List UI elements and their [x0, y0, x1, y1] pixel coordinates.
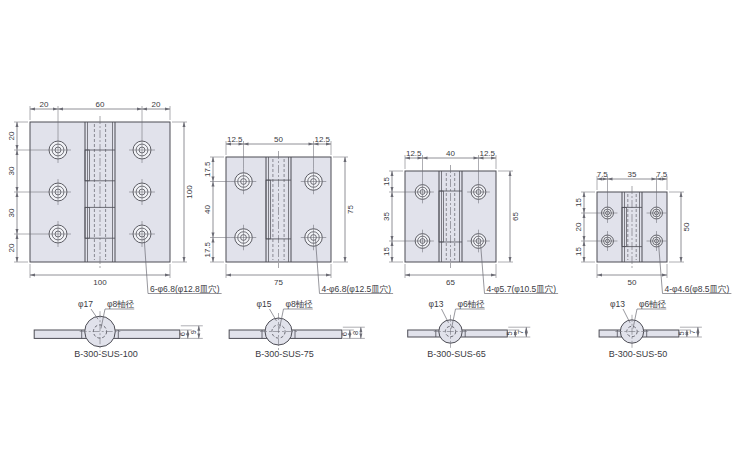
- side-view: φ13φ6軸径57B-300-SUS-50: [599, 299, 702, 359]
- dim-arrow: [212, 233, 215, 238]
- dim-arrow: [58, 108, 63, 111]
- dim-arrow: [391, 192, 394, 197]
- dim-arrow: [680, 257, 683, 262]
- overall-height-label: 7: [516, 330, 525, 334]
- dim-arrow: [509, 171, 512, 176]
- overall-height-label: 7: [688, 330, 697, 334]
- dim-label: 7.5: [656, 170, 668, 179]
- dim-arrow: [391, 241, 394, 246]
- plan-view: 12.55012.517.54017.57575: [203, 135, 355, 287]
- part-number: B-300-SUS-50: [609, 349, 668, 359]
- dim-arrow: [391, 257, 394, 262]
- plan-view: 7.5357.51520155050: [574, 170, 691, 287]
- dim-label: 35: [382, 212, 391, 221]
- dim-label: 30: [7, 208, 16, 217]
- dim-label: 65: [446, 278, 455, 287]
- dim-label: 100: [185, 185, 194, 199]
- dim-label: 30: [7, 166, 16, 175]
- thickness-label: 6: [340, 332, 349, 336]
- dim-label: 35: [628, 170, 637, 179]
- shaft-dia-label: φ8軸径: [286, 299, 314, 309]
- dim-arrow: [583, 208, 586, 213]
- dim-label: 20: [40, 100, 49, 109]
- dim-arrow: [680, 192, 683, 197]
- drawing-canvas: 206020203030201001006-φ6.8(φ12.8皿穴)φ17φ8…: [0, 0, 750, 450]
- shaft-dia-label: φ6軸径: [639, 299, 667, 309]
- dim-arrow: [344, 257, 347, 262]
- side-view: φ13φ6軸径57B-300-SUS-65: [408, 299, 531, 359]
- dim-arrow: [212, 182, 215, 187]
- hole-callout: 6-φ6.8(φ12.8皿穴): [150, 284, 220, 294]
- dim-arrow: [16, 229, 19, 234]
- dim-arrow: [662, 274, 667, 277]
- dim-arrow: [583, 192, 586, 197]
- dim-arrow: [16, 234, 19, 239]
- dim-arrow: [16, 192, 19, 197]
- dim-label: 20: [7, 131, 16, 140]
- dim-arrow: [597, 274, 602, 277]
- knuckle-dia-label: φ13: [610, 299, 625, 309]
- side-view: φ17φ8軸径69B-300-SUS-100: [34, 299, 203, 359]
- plan-view: 20602020303020100100: [7, 100, 194, 287]
- dim-arrow: [30, 108, 35, 111]
- dim-arrow: [16, 187, 19, 192]
- dim-label: 75: [346, 205, 355, 214]
- dim-arrow: [30, 274, 35, 277]
- thickness-label: 5: [677, 331, 686, 335]
- dim-label: 65: [511, 212, 520, 221]
- dim-arrow: [309, 143, 314, 146]
- side-view: φ15φ8軸径68B-300-SUS-75: [229, 299, 365, 359]
- dim-arrow: [344, 157, 347, 162]
- thickness-label: 6: [178, 332, 187, 336]
- dim-arrow: [391, 187, 394, 192]
- dim-arrow: [16, 122, 19, 127]
- dim-arrow: [583, 236, 586, 241]
- dim-label: 17.5: [203, 161, 212, 177]
- dim-label: 50: [628, 278, 637, 287]
- knuckle-dia-label: φ17: [78, 299, 93, 309]
- dim-arrow: [405, 274, 410, 277]
- dim-label: 12.5: [314, 135, 330, 144]
- technical-drawing-page: 206020203030201001006-φ6.8(φ12.8皿穴)φ17φ8…: [0, 0, 750, 450]
- dim-label: 15: [382, 247, 391, 256]
- dim-label: 100: [93, 278, 107, 287]
- dim-arrow: [474, 157, 479, 160]
- plan-view: 12.54012.51535156565: [382, 149, 520, 287]
- hole-callout: 4-φ4.6(φ8.5皿穴): [665, 284, 730, 294]
- dim-arrow: [226, 274, 231, 277]
- dim-arrow: [165, 274, 170, 277]
- dim-label: 12.5: [406, 149, 422, 158]
- dim-arrow: [137, 108, 142, 111]
- dim-arrow: [244, 143, 249, 146]
- part-number: B-300-SUS-75: [255, 349, 314, 359]
- hinge-B-300-SUS-50: 7.5357.515201550504-φ4.6(φ8.5皿穴)φ13φ6軸径5…: [574, 170, 731, 360]
- dim-label: 50: [274, 135, 283, 144]
- dim-arrow: [583, 213, 586, 218]
- part-number: B-300-SUS-65: [427, 349, 486, 359]
- dim-arrow: [608, 178, 613, 181]
- dim-arrow: [212, 238, 215, 243]
- dim-arrow: [491, 274, 496, 277]
- dim-arrow: [509, 257, 512, 262]
- part-number: B-300-SUS-100: [74, 349, 138, 359]
- dim-arrow: [16, 145, 19, 150]
- dim-arrow: [583, 257, 586, 262]
- shaft-dia-label: φ8軸径: [107, 299, 135, 309]
- hinge-B-300-SUS-65: 12.54012.515351565654-φ5.7(φ10.5皿穴)φ13φ6…: [382, 149, 558, 360]
- overall-height-label: 9: [189, 330, 198, 334]
- hole-callout: 4-φ6.8(φ12.5皿穴): [322, 284, 392, 294]
- dim-label: 60: [96, 100, 105, 109]
- dim-arrow: [391, 171, 394, 176]
- dim-label: 15: [574, 198, 583, 207]
- dim-arrow: [583, 241, 586, 246]
- overall-height-label: 8: [351, 331, 360, 335]
- dim-label: 50: [682, 222, 691, 231]
- hinge-B-300-SUS-75: 12.55012.517.54017.575754-φ6.8(φ12.5皿穴)φ…: [203, 135, 393, 360]
- dim-arrow: [212, 157, 215, 162]
- dim-arrow: [16, 150, 19, 155]
- dim-arrow: [53, 108, 58, 111]
- thickness-label: 5: [505, 331, 514, 335]
- dim-label: 20: [7, 243, 16, 252]
- dim-label: 12.5: [227, 135, 243, 144]
- dim-label: 15: [574, 247, 583, 256]
- dim-arrow: [326, 274, 331, 277]
- dim-label: 40: [203, 205, 212, 214]
- dim-label: 7.5: [597, 170, 609, 179]
- dim-label: 17.5: [203, 241, 212, 257]
- dim-label: 20: [574, 222, 583, 231]
- dim-arrow: [391, 236, 394, 241]
- dim-label: 12.5: [479, 149, 495, 158]
- dim-arrow: [165, 108, 170, 111]
- dim-arrow: [142, 108, 147, 111]
- dim-label: 15: [382, 177, 391, 186]
- hinge-B-300-SUS-100: 206020203030201001006-φ6.8(φ12.8皿穴)φ17φ8…: [7, 100, 222, 360]
- dim-label: 40: [446, 149, 455, 158]
- dim-arrow: [183, 122, 186, 127]
- knuckle-dia-label: φ15: [257, 299, 272, 309]
- dim-arrow: [423, 157, 428, 160]
- dim-label: 20: [152, 100, 161, 109]
- dim-label: 75: [274, 278, 283, 287]
- dim-arrow: [16, 257, 19, 262]
- shaft-dia-label: φ6軸径: [458, 299, 486, 309]
- dim-arrow: [183, 257, 186, 262]
- hole-callout: 4-φ5.7(φ10.5皿穴): [487, 284, 557, 294]
- knuckle-dia-label: φ13: [429, 299, 444, 309]
